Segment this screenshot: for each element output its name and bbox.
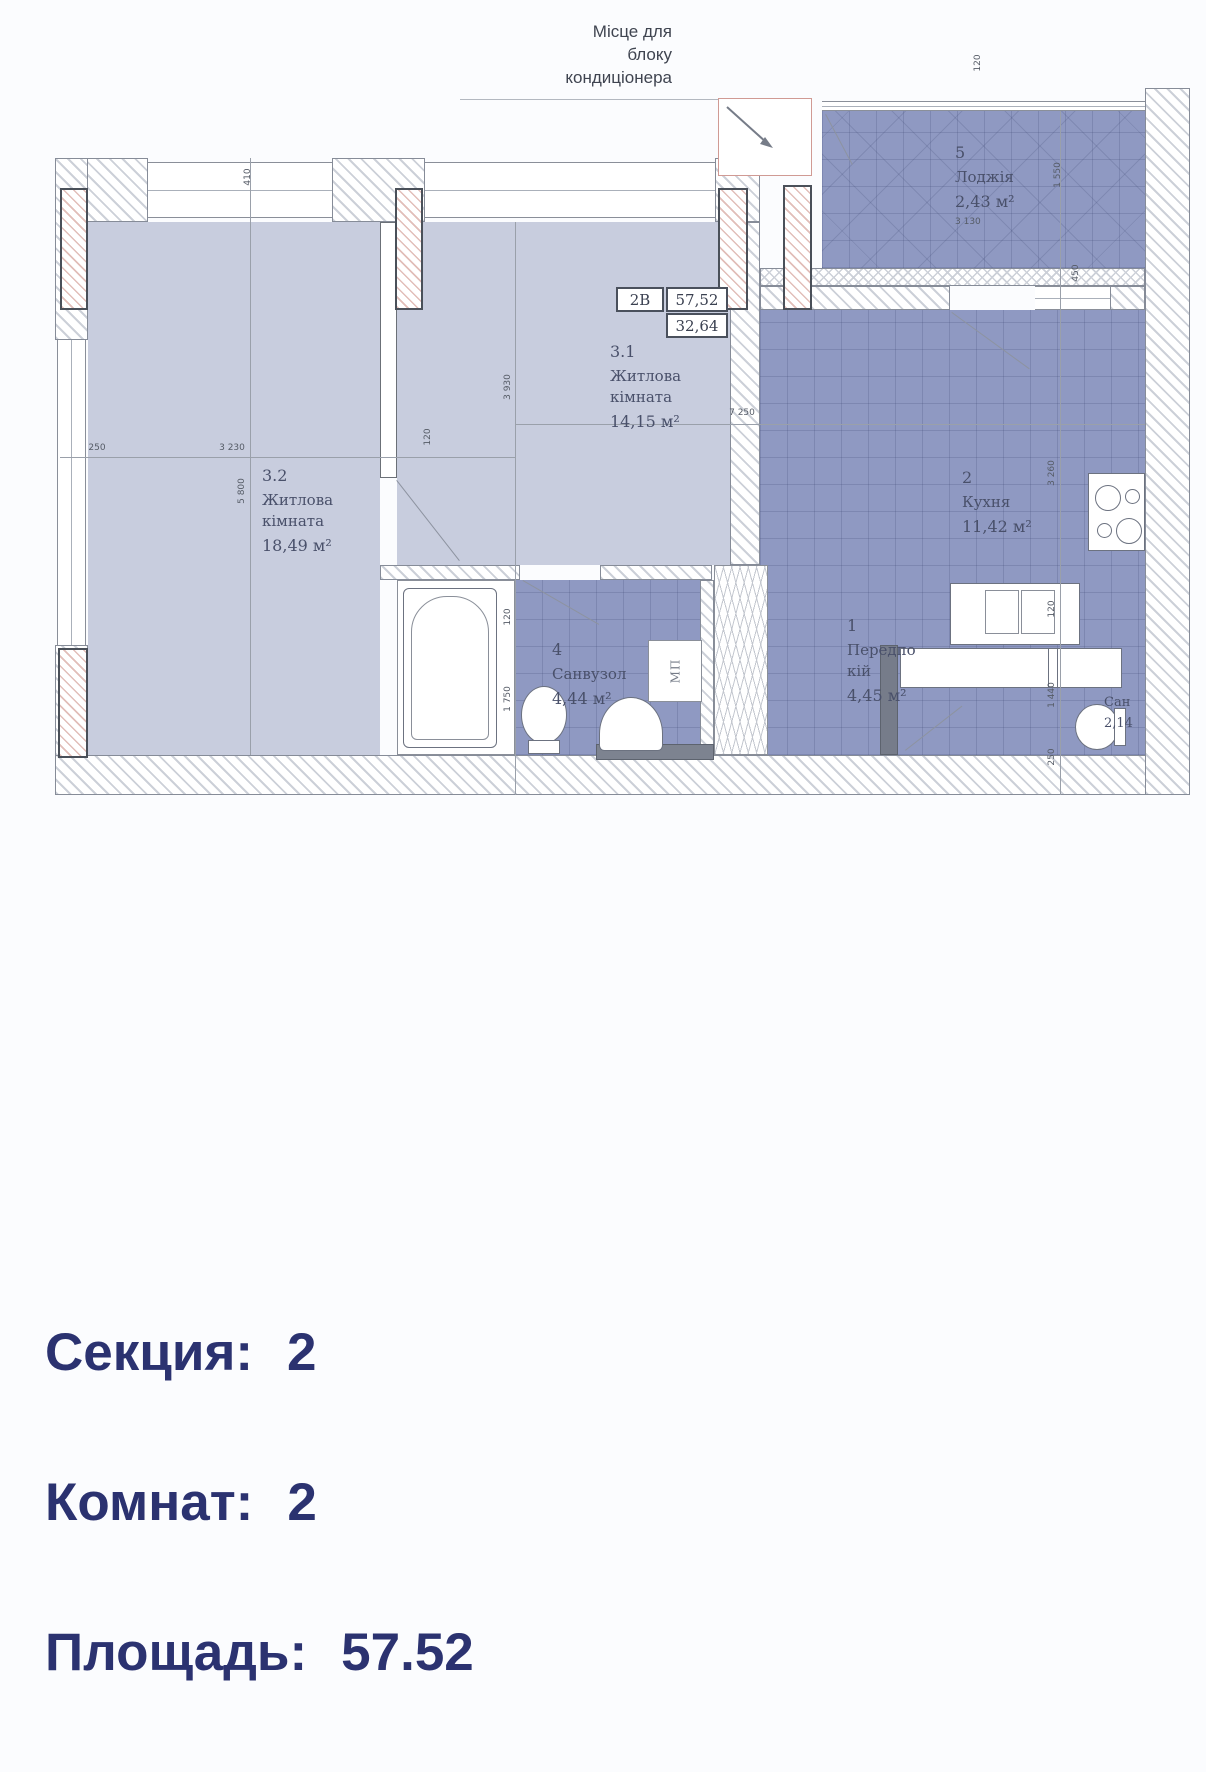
dim-label: 120 bbox=[1047, 589, 1057, 629]
stove-burner bbox=[1116, 518, 1142, 544]
washing-machine-label: МП bbox=[668, 659, 682, 684]
toilet-tank bbox=[528, 740, 560, 754]
summary-section-value: 2 bbox=[287, 1323, 316, 1382]
summary-section-label: Секция: bbox=[45, 1323, 253, 1382]
wall bbox=[1110, 286, 1145, 310]
dim-label: 7 250 bbox=[712, 408, 772, 418]
wardrobe bbox=[714, 565, 768, 755]
annotation-underline bbox=[460, 99, 756, 100]
room-label-3-1: 3.1 Житлова кімната 14,15 м² bbox=[610, 342, 681, 431]
dim-label: 1 750 bbox=[503, 679, 513, 719]
dim-line bbox=[515, 222, 516, 795]
stove-burner bbox=[1125, 489, 1140, 504]
window bbox=[425, 162, 715, 218]
ac-annotation: Місце для блоку кондиціонера bbox=[470, 20, 672, 89]
summary-rooms-row: Комнат:2 bbox=[45, 1472, 474, 1532]
wall bbox=[700, 580, 714, 755]
ac-annotation-line3: кондиціонера bbox=[470, 66, 672, 89]
dim-line bbox=[250, 158, 251, 755]
summary-area-row: Площадь:57.52 bbox=[45, 1622, 474, 1682]
pier bbox=[58, 648, 88, 758]
bathtub-inner bbox=[411, 596, 489, 740]
room-label-kitchen: 2 Кухня 11,42 м² bbox=[962, 468, 1032, 536]
dim-label: 120 bbox=[973, 43, 983, 83]
dim-label: 1 550 bbox=[1053, 155, 1063, 195]
pier bbox=[783, 185, 812, 310]
wall bbox=[1145, 88, 1190, 795]
room-label-loggia: 5 Лоджія 2,43 м² 3 130 bbox=[955, 143, 1015, 227]
ac-annotation-line2: блоку bbox=[470, 43, 672, 66]
dim-label: 250 bbox=[1047, 737, 1057, 777]
summary-section-row: Секция:2 bbox=[45, 1322, 474, 1382]
dim-line bbox=[1060, 111, 1061, 795]
room-label-wc: Сан 2,14 bbox=[1104, 692, 1133, 734]
dim-label: 3 930 bbox=[503, 367, 513, 407]
unit-living-area-cell: 32,64 bbox=[666, 313, 728, 338]
dim-label: 410 bbox=[243, 157, 253, 197]
cabinet-row bbox=[900, 648, 1122, 688]
kitchen-sink-bowl bbox=[985, 590, 1019, 634]
dim-label: 120 bbox=[503, 597, 513, 637]
dim-label: 1 440 bbox=[1047, 675, 1057, 715]
room-label-hall: 1 Передпо кій 4,45 м² bbox=[847, 616, 916, 705]
pier bbox=[60, 188, 88, 310]
dim-label: 3 260 bbox=[1047, 453, 1057, 493]
wall bbox=[55, 755, 1190, 795]
loggia-glazing bbox=[822, 101, 1145, 111]
ac-arrow-icon bbox=[719, 99, 809, 173]
window bbox=[148, 162, 332, 218]
window bbox=[57, 340, 86, 645]
room-label-3-2: 3.2 Житлова кімната 18,49 м² bbox=[262, 466, 333, 555]
stove-burner bbox=[1095, 485, 1121, 511]
bathtub bbox=[403, 588, 497, 748]
summary-rooms-value: 2 bbox=[287, 1473, 316, 1532]
dim-label: 3 230 bbox=[202, 443, 262, 453]
washing-machine-box: МП bbox=[648, 640, 702, 702]
room-3-2-floor bbox=[88, 222, 380, 755]
dim-label: 450 bbox=[1071, 253, 1081, 293]
cabinet-divider bbox=[1057, 648, 1058, 688]
wall bbox=[380, 565, 520, 580]
dim-label: 120 bbox=[423, 417, 433, 457]
ac-annotation-line1: Місце для bbox=[470, 20, 672, 43]
ac-unit-box bbox=[718, 98, 812, 176]
insulation-strip bbox=[760, 268, 1145, 286]
summary-rooms-label: Комнат: bbox=[45, 1473, 253, 1532]
summary-area-value: 57.52 bbox=[341, 1623, 474, 1682]
unit-code-cell: 2В bbox=[616, 287, 664, 312]
pier bbox=[395, 188, 423, 310]
stove-burner bbox=[1097, 523, 1112, 538]
room-label-bath: 4 Санвузол 4,44 м² bbox=[552, 640, 626, 708]
page: { "plan": { "annotation": ["Місце для", … bbox=[0, 0, 1206, 1691]
summary-area-label: Площадь: bbox=[45, 1623, 307, 1682]
unit-total-area-cell: 57,52 bbox=[666, 287, 728, 312]
wall bbox=[600, 565, 712, 580]
dim-label: 250 bbox=[80, 443, 114, 453]
dim-line bbox=[60, 457, 515, 458]
dim-label: 5 800 bbox=[237, 471, 247, 511]
floor-plan: Місце для блоку кондиціонера bbox=[0, 0, 1206, 850]
summary: Секция:2 Комнат:2 Площадь:57.52 bbox=[45, 1322, 474, 1772]
